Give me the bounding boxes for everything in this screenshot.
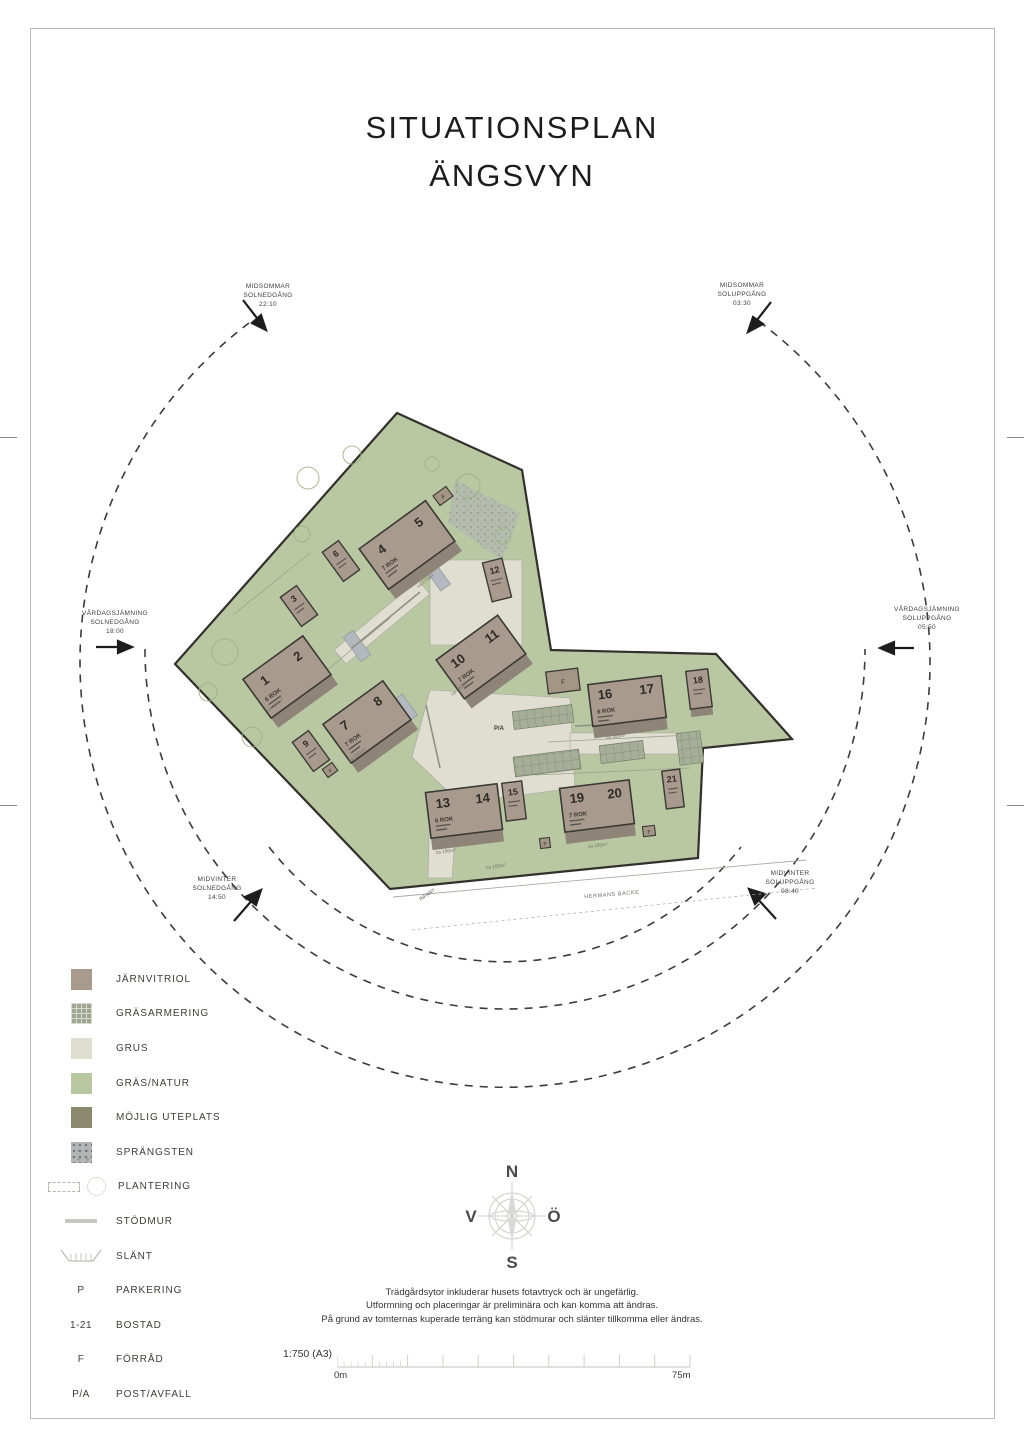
house-21: 21 xyxy=(662,769,684,809)
sun-label-midvinter-solnedgang: MIDVINTER SOLNEDGÅNG 14:50 xyxy=(152,876,282,902)
legend-item-sprangsten: SPRÄNGSTEN xyxy=(46,1135,306,1170)
grasarmering-swatch xyxy=(71,1003,92,1024)
sun-label-vardagsjamning-solnedgang: VÅRDAGSJÄMNING SOLNEDGÅNG 18:00 xyxy=(50,610,180,636)
svg-text:13: 13 xyxy=(435,795,451,812)
legend: JÄRNVITRIOL GRÄSARMERING GRUS GRÄS/NATUR… xyxy=(46,962,306,1412)
scale-start: 0m xyxy=(334,1370,347,1381)
jarnvitriol-swatch xyxy=(71,969,92,990)
svg-text:17: 17 xyxy=(639,681,655,698)
stodmur-swatch xyxy=(65,1219,97,1223)
legend-item-jarnvitriol: JÄRNVITRIOL xyxy=(46,962,306,997)
compass-w: V xyxy=(465,1207,477,1226)
legend-item-gras-natur: GRÄS/NATUR xyxy=(46,1066,306,1101)
notes: Trädgårdsytor inkluderar husets fotavtry… xyxy=(0,1286,1024,1326)
svg-text:15: 15 xyxy=(507,786,518,797)
legend-item-mojlig-uteplats: MÖJLIG UTEPLATS xyxy=(46,1100,306,1135)
compass-s: S xyxy=(506,1253,517,1272)
sun-label-midsommar-soluppgang: MIDSOMMAR SOLUPPGÅNG 03:30 xyxy=(677,282,807,308)
sun-label-midvinter-soluppgang: MIDVINTER SOLUPPGÅNG 08:40 xyxy=(725,870,855,896)
scale-end: 75m xyxy=(672,1370,690,1381)
svg-text:20: 20 xyxy=(606,785,622,802)
shed-f: F xyxy=(539,837,550,848)
compass-rose: N Ö S V xyxy=(440,1150,585,1280)
house-13-14: 13 14 6 ROK xyxy=(425,784,504,850)
house-19-20: 19 20 7 ROK xyxy=(560,780,636,844)
legend-item-grasarmering: GRÄSARMERING xyxy=(46,997,306,1032)
shed-f: F xyxy=(642,825,655,836)
sun-label-vardagsjamning-soluppgang: VÅRDAGSJÄMNING SOLUPPGÅNG 05:50 xyxy=(862,606,992,632)
plantering-swatch xyxy=(48,1177,106,1196)
slant-swatch xyxy=(59,1248,103,1264)
legend-item-grus: GRUS xyxy=(46,1031,306,1066)
street-label: HERMANS BACKE xyxy=(584,890,640,901)
arrow-vardagsjamning-solnedgang xyxy=(96,641,132,653)
sprangsten-swatch xyxy=(71,1142,92,1163)
scale-bar xyxy=(337,1350,693,1370)
grus-swatch xyxy=(71,1038,92,1059)
house-15: 15 xyxy=(502,781,526,821)
legend-item-post-avfall: P/A POST/AVFALL xyxy=(46,1377,306,1412)
gras-natur-swatch xyxy=(71,1073,92,1094)
legend-item-forrad: F FÖRRÅD xyxy=(46,1343,306,1378)
compass-n: N xyxy=(506,1162,518,1181)
legend-item-stodmur: STÖDMUR xyxy=(46,1204,306,1239)
scale-ratio: 1:750 (A3) xyxy=(283,1348,332,1360)
situationsplan-sheet: SITUATIONSPLAN ÄNGSVYN xyxy=(0,0,1024,1447)
legend-item-plantering: PLANTERING xyxy=(46,1170,306,1205)
post-avfall-label: P/A xyxy=(494,726,505,732)
sun-label-midsommar-solnedgang: MIDSOMMAR SOLNEDGÅNG 22:10 xyxy=(203,283,333,309)
svg-text:19: 19 xyxy=(569,790,585,807)
arrow-vardagsjamning-soluppgang xyxy=(880,642,914,654)
legend-item-slant: SLÄNT xyxy=(46,1239,306,1274)
svg-text:18: 18 xyxy=(692,674,703,685)
compass-e: Ö xyxy=(547,1207,560,1226)
svg-text:16: 16 xyxy=(597,686,613,703)
house-18: 18 xyxy=(686,669,713,717)
svg-text:14: 14 xyxy=(474,790,491,807)
svg-text:21: 21 xyxy=(666,774,677,785)
mojlig-uteplats-swatch xyxy=(71,1107,92,1128)
shed-f: F xyxy=(546,668,580,694)
house-16-17: 16 17 6 ROK xyxy=(588,676,668,739)
entry-label: INFART xyxy=(418,888,436,903)
